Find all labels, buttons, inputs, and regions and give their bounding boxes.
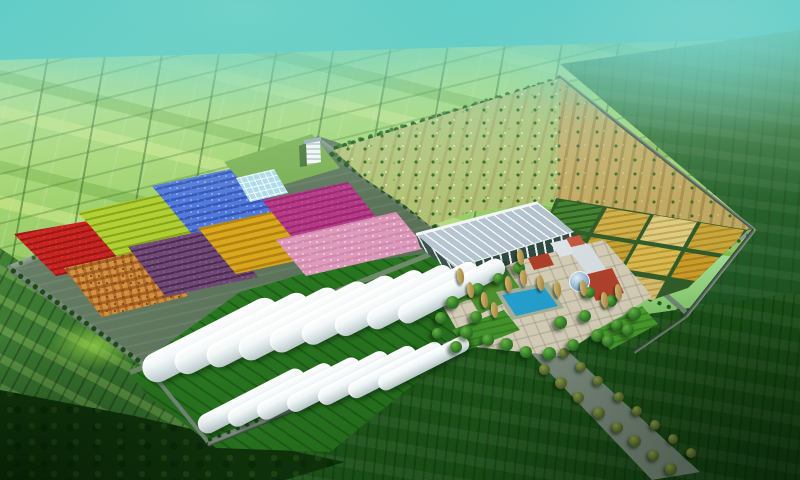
atmospheric-haze (0, 0, 800, 480)
aerial-farm-park-render (0, 0, 800, 480)
